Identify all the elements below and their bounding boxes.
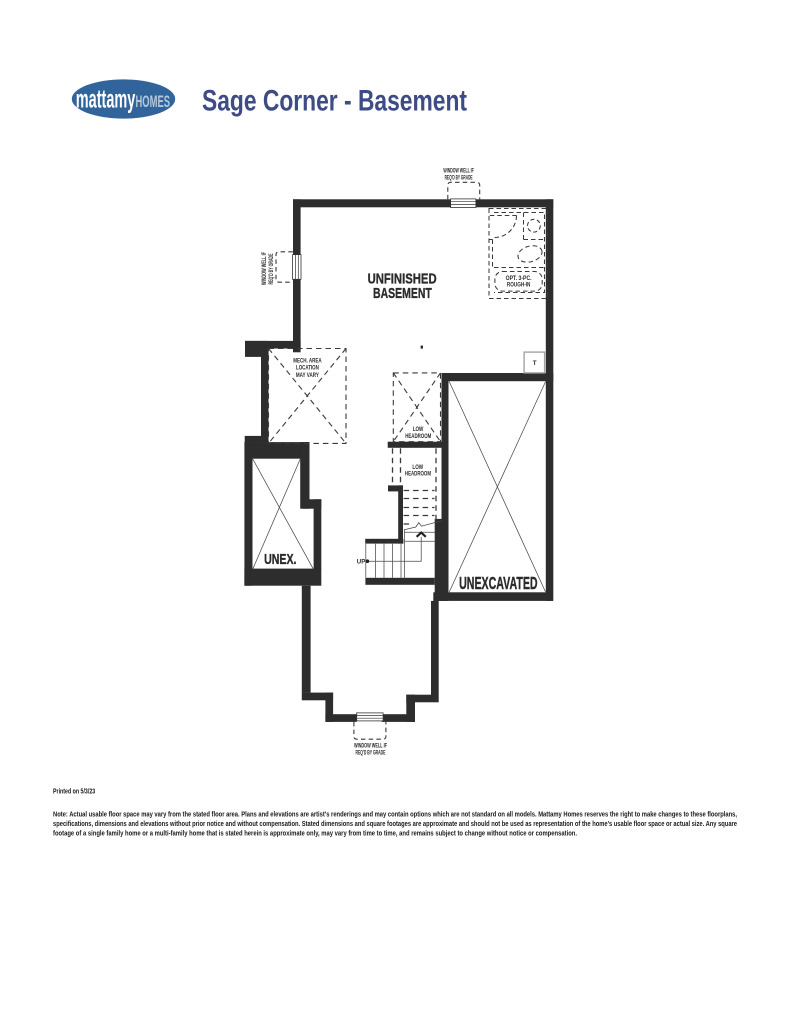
- svg-text:LOCATION: LOCATION: [296, 365, 319, 372]
- svg-text:REQ'D BY GRADE: REQ'D BY GRADE: [268, 254, 275, 285]
- svg-text:Note: Actual usable floor spac: Note: Actual usable floor space may vary…: [53, 810, 737, 819]
- svg-text:UP: UP: [357, 560, 366, 566]
- svg-text:T: T: [533, 360, 537, 367]
- svg-text:footage of a single family hom: footage of a single family home or a mul…: [53, 829, 577, 838]
- svg-text:Printed on 5/3/23: Printed on 5/3/23: [53, 789, 95, 796]
- svg-text:ROUGH-IN: ROUGH-IN: [507, 282, 531, 289]
- svg-text:REQ'D BY GRADE: REQ'D BY GRADE: [445, 175, 473, 182]
- svg-text:UNEXCAVATED: UNEXCAVATED: [459, 573, 537, 593]
- svg-text:MECH. AREA: MECH. AREA: [293, 358, 322, 365]
- svg-text:Sage Corner - Basement: Sage Corner - Basement: [202, 84, 467, 117]
- svg-text:BASEMENT: BASEMENT: [373, 285, 432, 302]
- svg-text:HEADROOM: HEADROOM: [405, 471, 431, 478]
- svg-text:WINDOW WELL IF: WINDOW WELL IF: [443, 167, 474, 174]
- svg-text:WINDOW WELL IF: WINDOW WELL IF: [354, 743, 387, 750]
- svg-text:specifications, dimensions and: specifications, dimensions and elevation…: [53, 819, 737, 828]
- svg-text:REQ'D BY GRADE: REQ'D BY GRADE: [356, 750, 386, 757]
- svg-text:mattamy: mattamy: [76, 83, 136, 113]
- svg-text:UNEX.: UNEX.: [264, 552, 296, 568]
- svg-text:HEADROOM: HEADROOM: [405, 433, 431, 440]
- svg-text:MAY VARY: MAY VARY: [296, 372, 320, 379]
- svg-text:HOMES: HOMES: [136, 92, 171, 111]
